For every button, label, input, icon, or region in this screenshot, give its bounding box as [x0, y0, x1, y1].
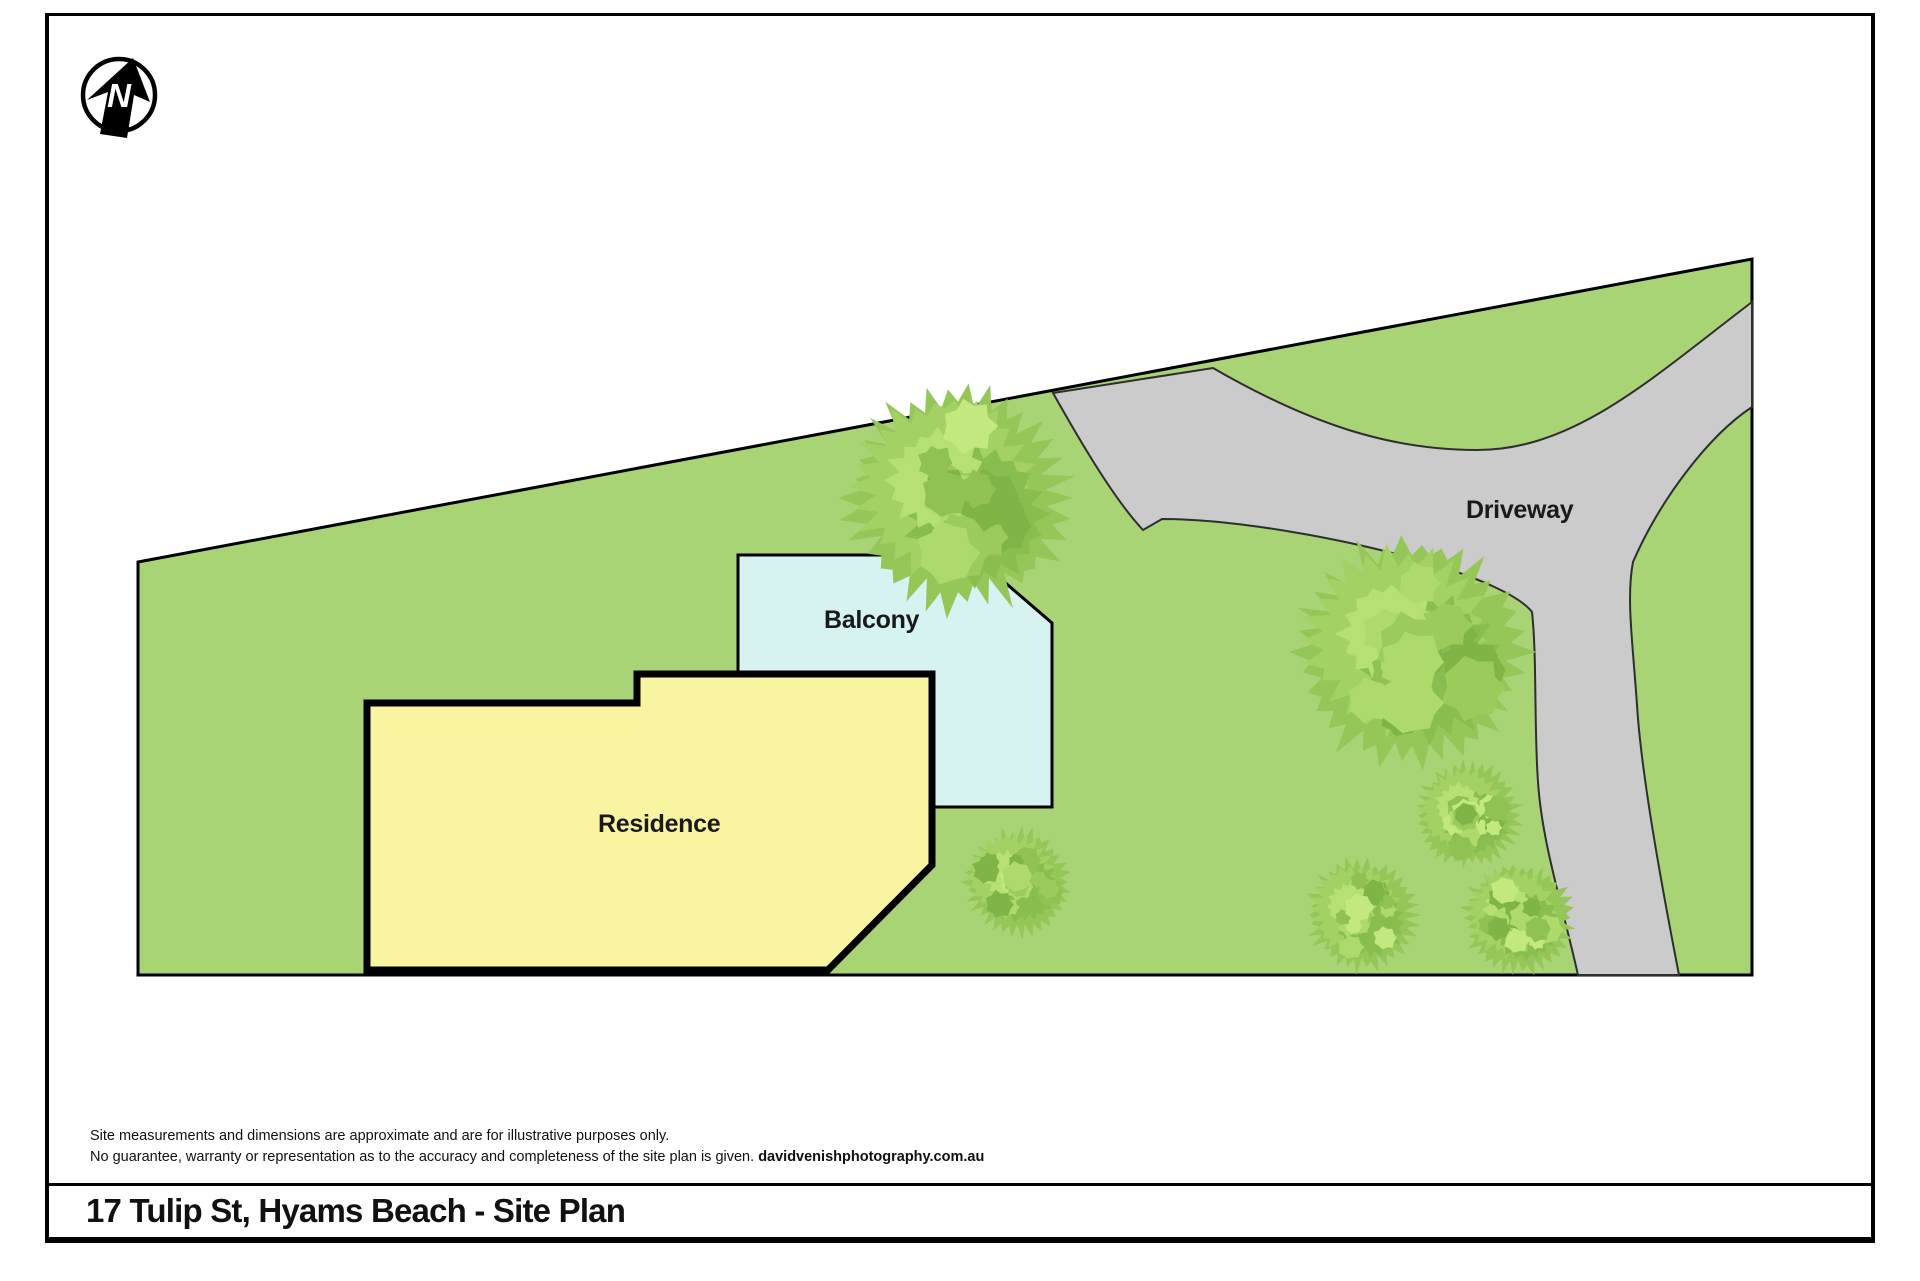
page-title: 17 Tulip St, Hyams Beach - Site Plan — [86, 1192, 625, 1229]
photography-credit: davidvenishphotography.com.au — [758, 1149, 984, 1165]
driveway-label: Driveway — [1466, 496, 1574, 524]
frame-top — [45, 13, 1875, 16]
disclaimer-line1: Site measurements and dimensions are app… — [90, 1128, 669, 1144]
residence-label: Residence — [598, 810, 721, 838]
frame-bottom — [45, 1237, 1875, 1243]
balcony-label: Balcony — [824, 606, 920, 634]
site-plan-canvas: Residence Balcony Driveway N Site measur… — [0, 0, 1920, 1281]
title-separator — [47, 1183, 1871, 1186]
disclaimer-line2: No guarantee, warranty or representation… — [90, 1149, 984, 1165]
disclaimer-line2-normal: No guarantee, warranty or representation… — [90, 1149, 758, 1165]
frame-left — [45, 13, 49, 1243]
north-arrow-icon: N — [83, 58, 155, 138]
frame-right — [1871, 13, 1875, 1243]
site-plan-page: Residence Balcony Driveway N Site measur… — [0, 0, 1920, 1281]
north-letter: N — [107, 77, 132, 114]
